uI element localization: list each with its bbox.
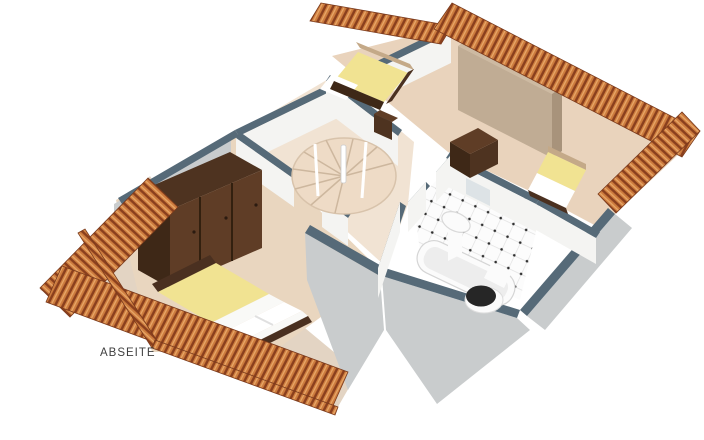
abseite-label: ABSEITE — [100, 347, 156, 359]
cabinet-side — [552, 87, 562, 158]
roof-band-top-left — [310, 3, 452, 44]
wardrobe-handle — [254, 203, 257, 206]
spiral-staircase — [292, 138, 396, 214]
wardrobe-handle — [192, 230, 195, 233]
toilet-seat — [466, 286, 496, 307]
floorplan-canvas: ABSEITE — [0, 0, 704, 440]
floorplan-3d-view: ABSEITE — [0, 0, 704, 440]
wardrobe-handle — [224, 216, 227, 219]
stair-center-pole — [341, 145, 346, 183]
